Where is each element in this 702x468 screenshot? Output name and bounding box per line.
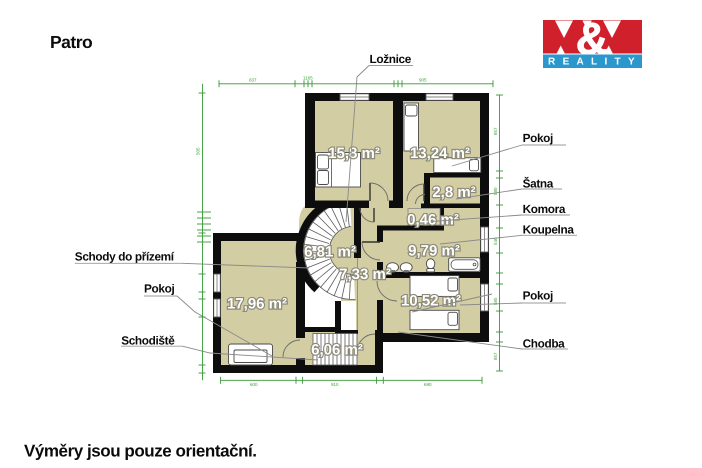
svg-text:10,52 m²: 10,52 m² — [401, 293, 461, 310]
svg-text:Schody do přízemí: Schody do přízemí — [75, 249, 175, 263]
svg-text:Šatna: Šatna — [523, 176, 554, 190]
svg-text:505: 505 — [196, 147, 201, 155]
svg-text:857: 857 — [493, 352, 498, 360]
svg-text:Patro: Patro — [50, 32, 92, 52]
svg-text:837: 837 — [249, 78, 257, 83]
svg-text:2,8 m²: 2,8 m² — [432, 184, 475, 201]
svg-text:Výměry jsou pouze orientační.: Výměry jsou pouze orientační. — [24, 442, 257, 461]
svg-text:690: 690 — [424, 382, 432, 387]
svg-text:13,24 m²: 13,24 m² — [410, 145, 470, 162]
svg-text:6,06 m²: 6,06 m² — [311, 342, 363, 359]
svg-text:6,81 m²: 6,81 m² — [304, 244, 356, 261]
svg-text:Pokoj: Pokoj — [523, 131, 553, 145]
svg-text:Pokoj: Pokoj — [144, 281, 174, 295]
svg-text:17,96 m²: 17,96 m² — [227, 296, 287, 313]
svg-text:905: 905 — [419, 78, 427, 83]
svg-text:9,79 m²: 9,79 m² — [408, 243, 460, 260]
svg-text:Pokoj: Pokoj — [523, 289, 553, 303]
svg-text:Komora: Komora — [523, 202, 566, 216]
svg-text:Schodiště: Schodiště — [121, 334, 175, 348]
svg-text:910: 910 — [331, 382, 339, 387]
svg-text:REALITY: REALITY — [548, 57, 642, 68]
svg-text:585: 585 — [493, 297, 498, 305]
svg-text:Koupelna: Koupelna — [523, 223, 575, 237]
svg-text:580: 580 — [493, 187, 498, 195]
svg-text:1165: 1165 — [303, 76, 313, 81]
svg-text:857: 857 — [493, 127, 498, 135]
svg-text:15,8 m²: 15,8 m² — [328, 145, 380, 162]
svg-text:540: 540 — [493, 237, 498, 245]
svg-text:7,33 m²: 7,33 m² — [339, 266, 391, 283]
svg-text:600: 600 — [250, 382, 258, 387]
svg-text:Ložnice: Ložnice — [370, 52, 412, 66]
svg-text:Chodba: Chodba — [523, 337, 566, 351]
